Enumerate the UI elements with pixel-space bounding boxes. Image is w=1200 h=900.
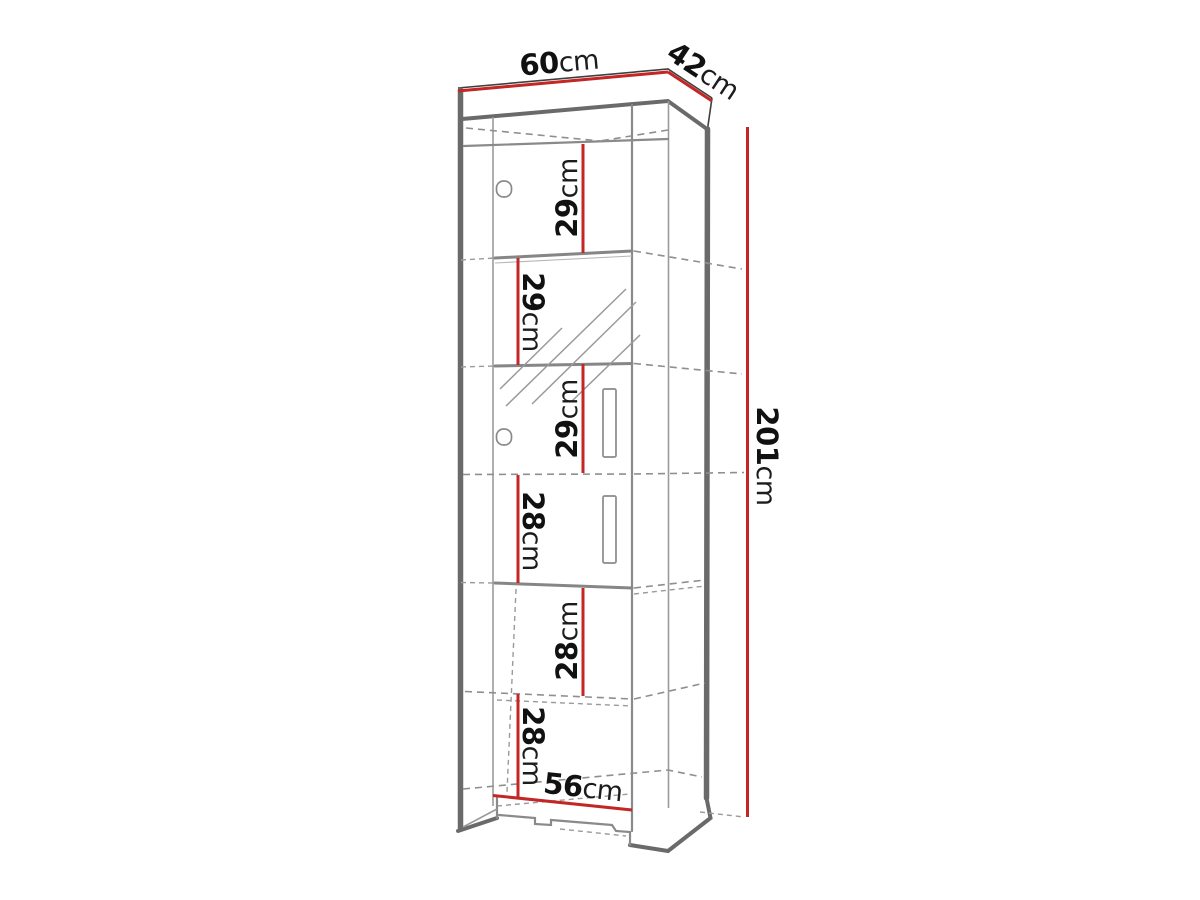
dimension-labels: 60cm 42cm 201cm 29cm 29cm 29cm 28cm 28cm… (516, 35, 784, 809)
section-4-label: 28cm (516, 491, 550, 571)
cabinet-dimension-drawing: 60cm 42cm 201cm 29cm 29cm 29cm 28cm 28cm… (0, 0, 1200, 900)
glass-door-handle-icon (497, 181, 512, 197)
height-label: 201cm (750, 406, 784, 505)
section-2-label: 29cm (516, 272, 550, 352)
section-3-label: 29cm (550, 379, 584, 459)
section-1-label: 29cm (550, 158, 584, 238)
drawing-canvas: 60cm 42cm 201cm 29cm 29cm 29cm 28cm 28cm… (0, 0, 1200, 900)
upper-door-pull-icon (603, 389, 616, 457)
lower-door-pull-icon (603, 496, 616, 563)
middle-door-handle-icon (497, 429, 512, 445)
width-label: 60cm (518, 42, 600, 83)
section-5-label: 28cm (550, 601, 584, 681)
shelf-lines (461, 128, 744, 817)
